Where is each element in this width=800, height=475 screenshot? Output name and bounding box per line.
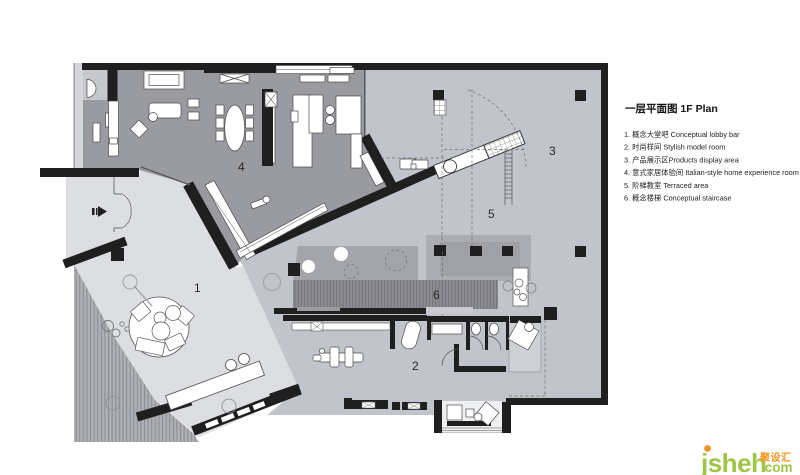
svg-text:5: 5 xyxy=(488,207,495,221)
svg-text:4: 4 xyxy=(238,160,245,174)
svg-text:2. 时尚样间 Stylish model room: 2. 时尚样间 Stylish model room xyxy=(624,143,725,152)
svg-text:4. 意式家居体验间 Italian-style home: 4. 意式家居体验间 Italian-style home experience… xyxy=(624,168,799,177)
svg-text:3: 3 xyxy=(549,144,556,158)
svg-text:5. 阶梯教室 Terraced area: 5. 阶梯教室 Terraced area xyxy=(624,181,709,190)
svg-text:3. 产品展示区Products display area: 3. 产品展示区Products display area xyxy=(624,155,740,164)
svg-text:聚设汇: 聚设汇 xyxy=(759,451,792,464)
svg-text:1: 1 xyxy=(194,281,201,295)
svg-text:6. 概念楼梯 Conceptual staircase: 6. 概念楼梯 Conceptual staircase xyxy=(624,194,731,203)
svg-text:jsheh: jsheh xyxy=(700,448,766,475)
svg-text:6: 6 xyxy=(433,288,440,302)
svg-text:1. 概念大堂吧 Conceptual lobby bar: 1. 概念大堂吧 Conceptual lobby bar xyxy=(624,130,740,139)
svg-text:2: 2 xyxy=(412,359,419,373)
svg-text:一层平面图 1F Plan: 一层平面图 1F Plan xyxy=(625,103,718,115)
